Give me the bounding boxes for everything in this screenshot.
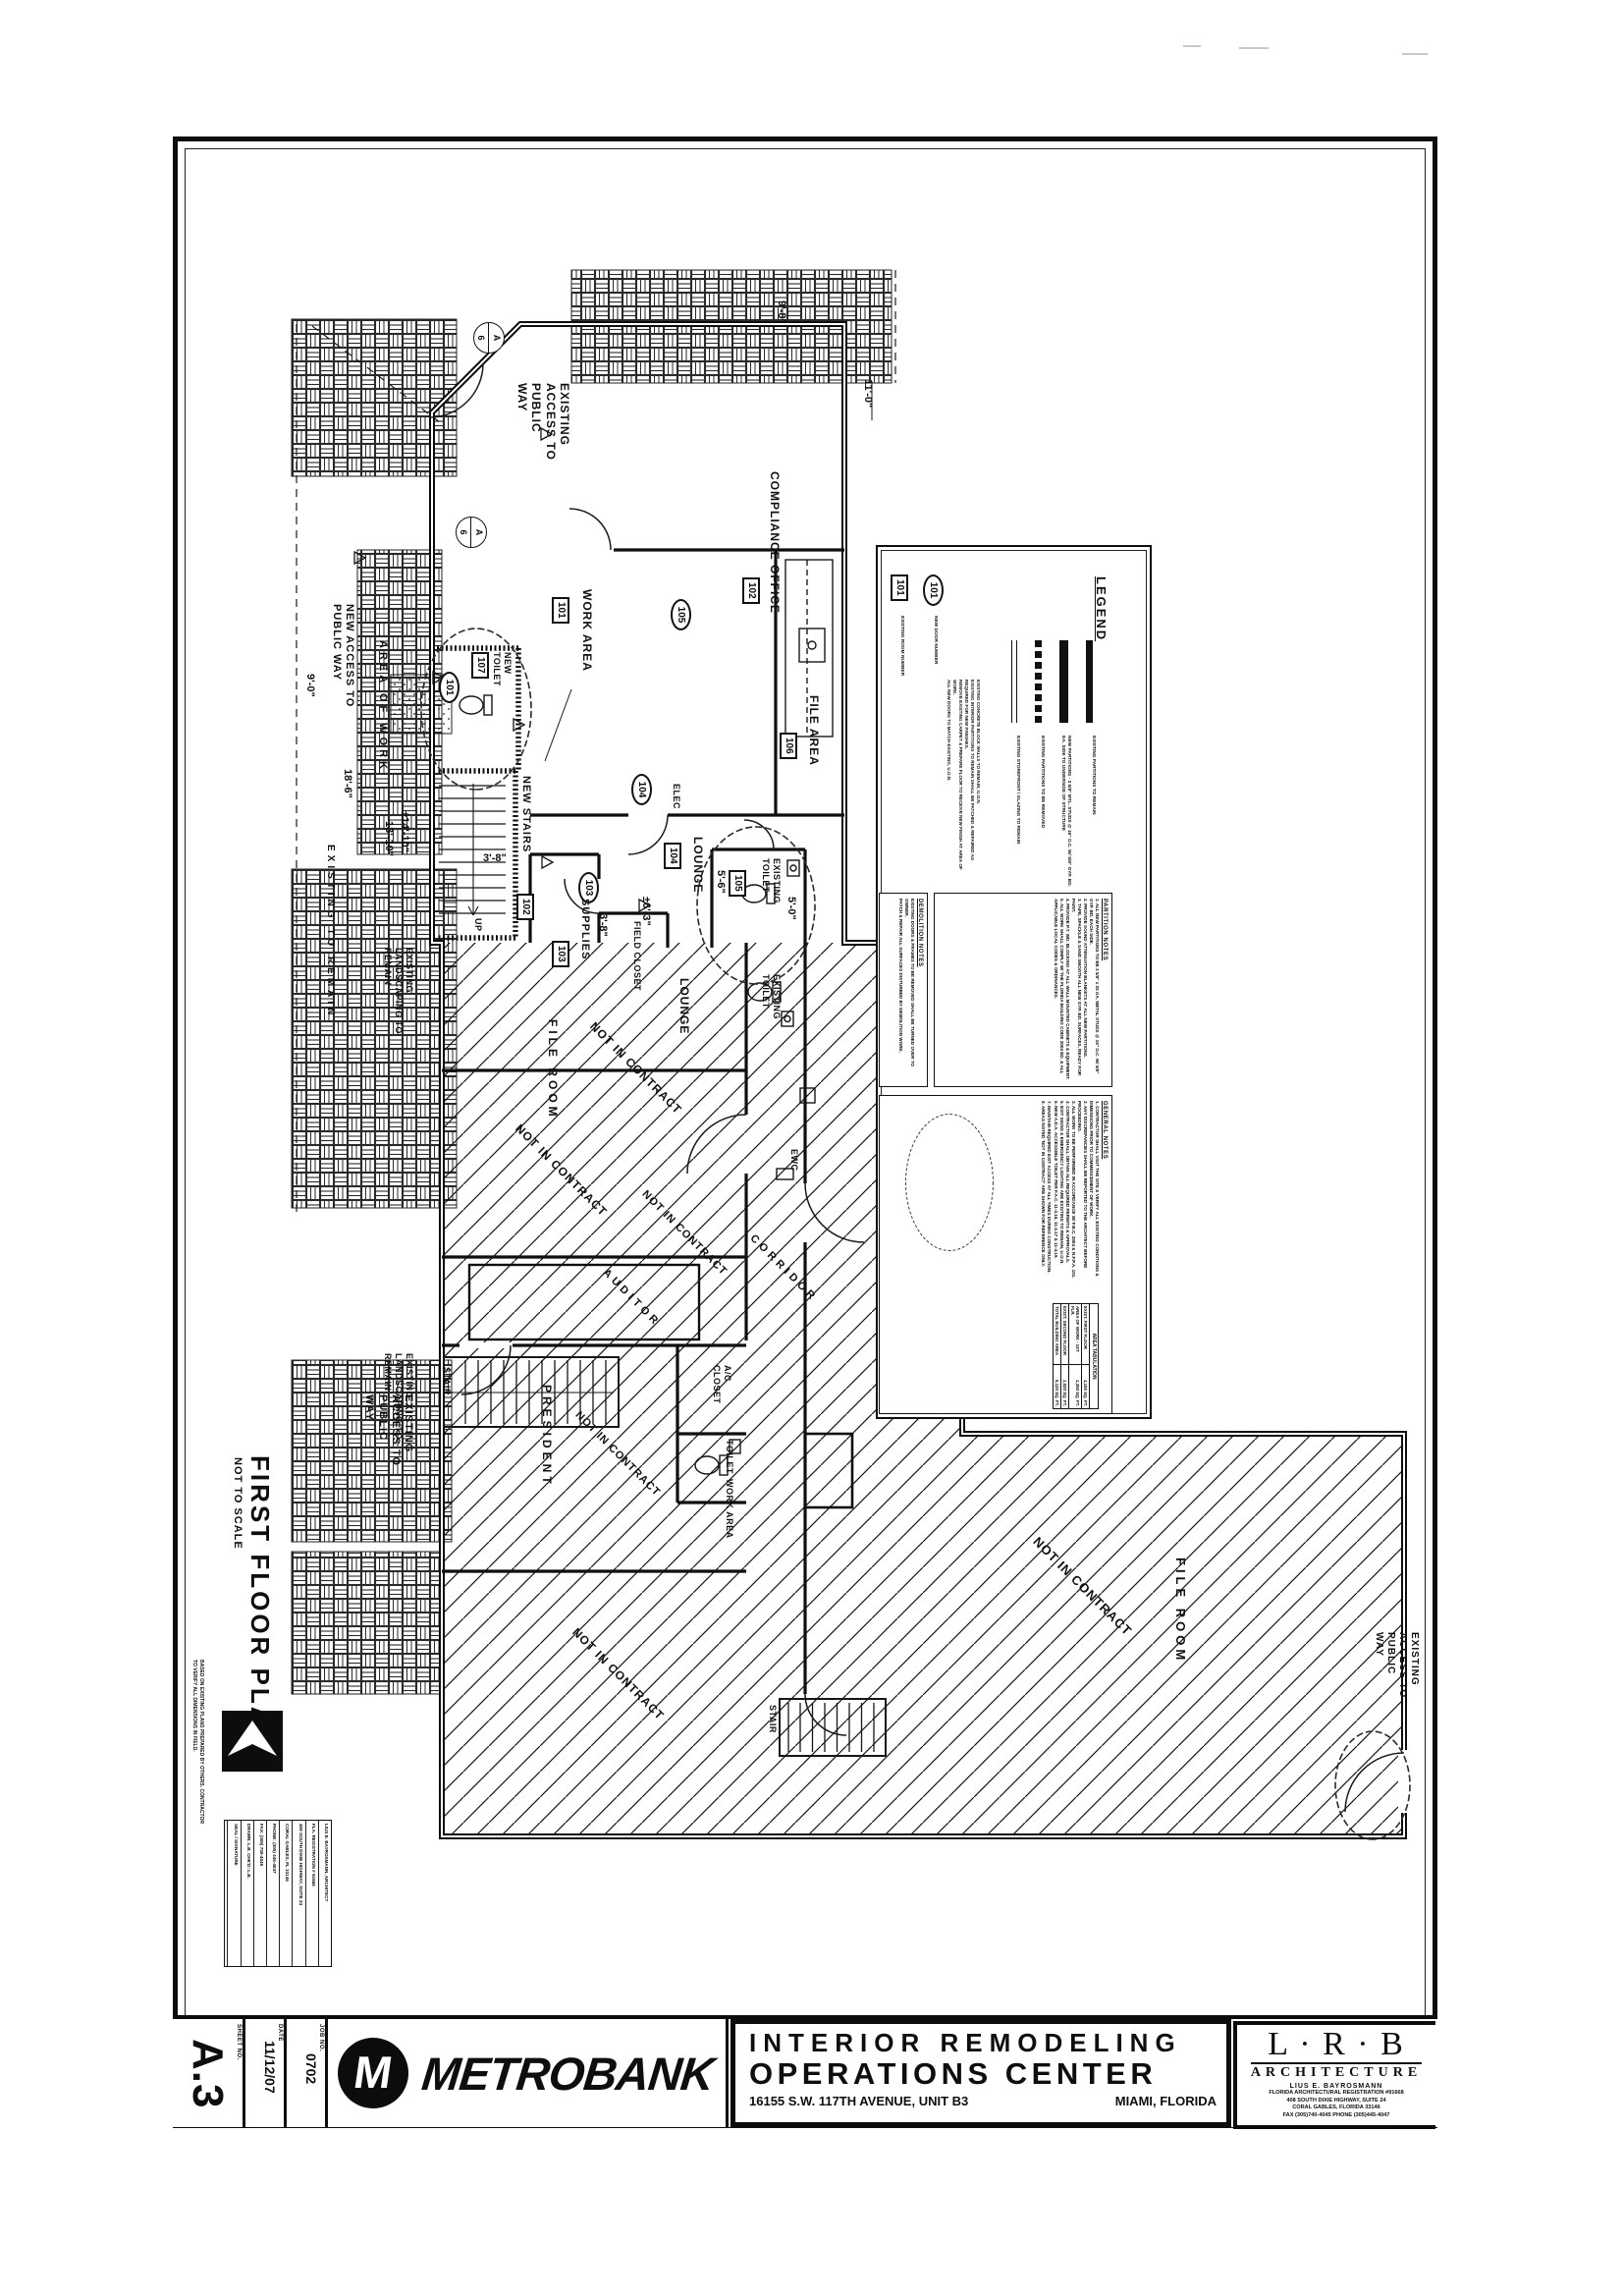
detail-bubble: A 6 [456,517,487,548]
metrobank-logo-icon: M [338,2038,408,2108]
area-row-label: EXIST. FIRST FLOOR [1082,1304,1089,1365]
firm-rule [1251,2062,1422,2064]
legend-symbol-label: NEW PARTITIONS - 3 5/8" MTL. STUDS @ 16"… [1059,736,1071,893]
general-notes-body: 1. CONTRACTOR SHALL VISIT THE SITE & VER… [1040,1101,1100,1292]
detail-sheet: 6 [457,518,470,547]
dimension: 9'-8" [775,301,787,324]
firm-initials: L · R · B [1237,2027,1435,2062]
file-area-room-tag: 106 [780,733,797,759]
area-tabulation-table: AREA TABULATION EXIST. FIRST FLOOR4,100 … [1053,1303,1099,1409]
area-row-value: 4,100 SQ. FT. [1082,1365,1089,1408]
elec-label: ELEC [671,784,681,809]
area-row-label: TOTAL BUILDING AREA [1054,1304,1060,1365]
ewc-label: EWC [788,1149,799,1172]
scan-artifact [1239,47,1269,49]
area-row-label: AREA OF WORK - 1ST FLR. [1069,1304,1081,1365]
architect-info-row: SEAL / SIGNATURE [228,1821,241,1966]
sheet-number: A.3 [183,2039,232,2108]
up-label: UP [472,918,483,932]
plan-title: FIRST FLOOR PLAN [244,1455,275,1749]
date-value: 11/12/07 [262,2041,278,2094]
new-toilet-label: NEW TOILET [491,652,513,686]
architect-firm-cell: L · R · B ARCHITECTURE LIUS E. BAYROSMAN… [1233,2021,1435,2129]
new-stairs-label: NEW STAIRS [519,776,532,852]
work-area-room-tag: 101 [552,597,569,624]
north-arrow-icon [217,1711,283,1772]
stair1-label: STAIR [441,1367,452,1395]
architect-info-row: LIUS E. BAYROSMANN, ARCHITECT [318,1821,331,1966]
dimension: 13'-10" [382,821,395,856]
legend-block: LEGEND EXISTING PARTITIONS TO REMAIN NEW… [876,545,1152,1419]
architect-info-row: FLA. REGISTRATION # 91668 [305,1821,318,1966]
floor-plan-drawing [285,265,1434,1846]
area-row-value: 1,020 SQ. FT. [1061,1365,1068,1408]
file-room-label: FILE ROOM [546,1019,560,1121]
lounge2-label: LOUNGE [677,978,691,1034]
lounge-label: LOUNGE [691,837,705,893]
supplies-label: SUPPLIES [578,899,591,959]
stair2-label: STAIR [767,1705,778,1733]
existing-to-remain-label: EXISTING TO REMAIN [324,845,336,1018]
existing-toilet-label: EXISTING TOILET [760,858,782,903]
area-of-work-label: AREA OF WORK [376,640,389,773]
sheet-number-cell: SHEET NO. A.3 [173,2019,245,2127]
title-block: SHEET NO. A.3 DATE 11/12/07 JOB NO. 0702… [173,2015,1437,2127]
notes-revision-cloud [905,1114,994,1251]
sheet-no-label: SHEET NO. [236,2024,242,2060]
partition-notes-box: PARTITION NOTES 1. ALL NEW PARTITIONS TO… [934,893,1112,1087]
existing-landscaping-label: EXISTING LANDSCAPING TO REMAIN [383,948,414,1034]
date-cell: DATE 11/12/07 [245,2019,287,2127]
legend-symbol-label: EXISTING STOREFRONT / GLAZING TO REMAIN [1014,736,1020,893]
file-room-big-label: FILE ROOM [1172,1558,1188,1664]
scan-artifact [1402,53,1428,55]
firm-info-line: 408 SOUTH DIXIE HIGHWAY, SUITE 24 [1237,2098,1435,2105]
legend-notes-text: EXISTING CONCRETE BLOCK WALLS TO REMAIN,… [946,680,981,881]
firm-initial-r: R [1323,2026,1347,2062]
partition-notes-body: 1. ALL NEW PARTITIONS TO BE 3 5/8" x 25 … [1053,899,1101,1081]
dimension: ±6'-3" [639,897,652,926]
legend-symbol-label: EXISTING PARTITIONS TO REMAIN [1090,736,1096,893]
demolition-notes-body: EXISTING DOORS & FRAMES TO BE REMOVED SH… [897,899,915,1081]
detail-letter: A [488,323,504,353]
floor-plan-area: LEGEND EXISTING PARTITIONS TO REMAIN NEW… [285,265,1434,1846]
dimension: ±14'-10" [398,811,410,852]
project-address: 16155 S.W. 117TH AVENUE, UNIT B3 [749,2094,968,2108]
door-tag-101: 101 [439,672,460,703]
scan-artifact [1183,45,1201,47]
architect-info-row: DRAWN: L.B. CHK'D: L.B. [241,1821,253,1966]
toilet2-label: TOILET [724,1440,734,1474]
plan-footnote: BASED ON EXISTING PLANS PREPARED BY OTHE… [191,1660,204,1827]
existing-toilet-room-tag: 105 [729,870,746,897]
architect-info-row: CORAL GABLES, FL 33146 [279,1821,292,1966]
firm-info-line: CORAL GABLES, FLORIDA 33146 [1237,2105,1435,2112]
leader-lines [545,381,872,761]
legend-symbol-storefront [1011,640,1017,723]
legend-room-tag-label: EXISTING ROOM NUMBER [898,616,904,773]
existing-access-label: EXISTING ACCESS TO PUBLIC WAY [1373,1632,1420,1698]
plan-subtitle: NOT TO SCALE [232,1457,243,1550]
architect-info-row: 408 SOUTH DIXIE HIGHWAY, SUITE 24 [292,1821,304,1966]
existing-toilet2-label: EXISTING TOILET [760,974,782,1019]
firm-info-line: FLORIDA ARCHITECTURAL REGISTRATION #9166… [1237,2090,1435,2098]
firm-name: ARCHITECTURE [1237,2065,1435,2081]
door-tag-105: 105 [671,599,691,630]
legend-symbol-label: EXISTING PARTITIONS TO BE REMOVED [1039,736,1045,893]
new-access-label: NEW ACCESS TO PUBLIC WAY [330,604,355,707]
job-number-cell: JOB NO. 0702 [287,2019,328,2127]
legend-symbol-new-wall [1059,640,1068,723]
file-area-label: FILE AREA [807,695,821,766]
job-number-value: 0702 [303,2053,319,2084]
client-name: METROBANK [419,2047,716,2101]
client-logo-cell: M METROBANK [328,2019,729,2127]
partition-notes-header: PARTITION NOTES [1102,899,1108,1081]
firm-dot: · [1299,2026,1312,2062]
lounge-room-tag: 104 [664,843,681,869]
firm-initial-l: L [1268,2026,1289,2062]
dimension: 9'-0" [303,674,316,697]
work-area-label: WORK AREA [580,589,594,672]
area-row-label: EXIST. SECOND FLOOR [1061,1304,1068,1365]
president-label: PRESIDENT [540,1385,554,1488]
demolition-notes-box: DEMOLITION NOTES EXISTING DOORS & FRAMES… [879,893,928,1087]
ac-closet-label: A/C CLOSET [711,1365,732,1404]
architect-info-table: LIUS E. BAYROSMANN, ARCHITECT FLA. REGIS… [224,1820,332,1967]
project-city: MIAMI, FLORIDA [1115,2094,1217,2108]
work-area2-label: WORK AREA [724,1479,734,1539]
dimension: 5'-6" [714,870,727,894]
firm-initial-b: B [1380,2026,1405,2062]
firm-principal: LIUS E. BAYROSMANN [1237,2083,1435,2090]
metrobank-logo-letter: M [351,2046,396,2099]
compliance-office-label: COMPLIANCE OFFICE [768,471,782,614]
date-label: DATE [277,2024,283,2042]
door-tag-104: 104 [631,774,652,805]
dimension: 5'-0" [784,897,797,920]
job-no-label: JOB NO. [318,2024,324,2051]
architect-info-row: PHONE: (305) 445-4047 [266,1821,279,1966]
firm-info-line: FAX (305)740-4045 PHONE (305)445-4047 [1237,2112,1435,2120]
detail-bubble: A 6 [473,322,505,354]
dimension: 3'-8" [483,852,507,865]
area-table-title: AREA TABULATION [1089,1304,1098,1408]
legend-room-tag-example: 101 [891,574,908,601]
new-stairs-room-tag: 102 [516,894,534,920]
compliance-office-room-tag: 102 [742,577,760,604]
project-title-cell: INTERIOR REMODELING OPERATIONS CENTER 16… [730,2019,1231,2127]
detail-sheet: 6 [474,323,488,353]
dimension: 11'-0" [861,379,874,408]
legend-door-tag-label: NEW DOOR NUMBER [932,616,938,773]
area-row-value: 1,350 SQ. FT. [1069,1365,1081,1408]
dimension: 3'-8" [596,913,609,937]
supplies-room-tag: 103 [552,941,569,967]
existing-access-label: EXISTING ACCESS TO PUBLIC WAY [362,1394,414,1466]
project-title-line1: INTERIOR REMODELING [749,2028,1217,2058]
firm-dot: · [1357,2026,1370,2062]
field-closet-label: FIELD CLOSET [631,921,642,991]
legend-symbol-existing-wall [1086,640,1093,723]
legend-symbol-demo-wall [1035,640,1042,723]
demolition-notes-header: DEMOLITION NOTES [917,899,923,1081]
existing-access-label: EXISTING ACCESS TO PUBLIC WAY [514,383,571,461]
legend-door-tag-example: 101 [923,574,944,606]
project-title-line2: OPERATIONS CENTER [749,2056,1217,2092]
legend-title: LEGEND [1094,576,1109,641]
new-toilet-room-tag: 107 [471,652,489,679]
area-row-value: 5,120 SQ. FT. [1054,1365,1060,1408]
detail-letter: A [470,518,486,547]
dimension: 18'-6" [341,769,353,798]
general-notes-header: GENERAL NOTES [1102,1101,1108,1408]
architect-info-row: FAX: (305) 740-4045 [253,1821,266,1966]
